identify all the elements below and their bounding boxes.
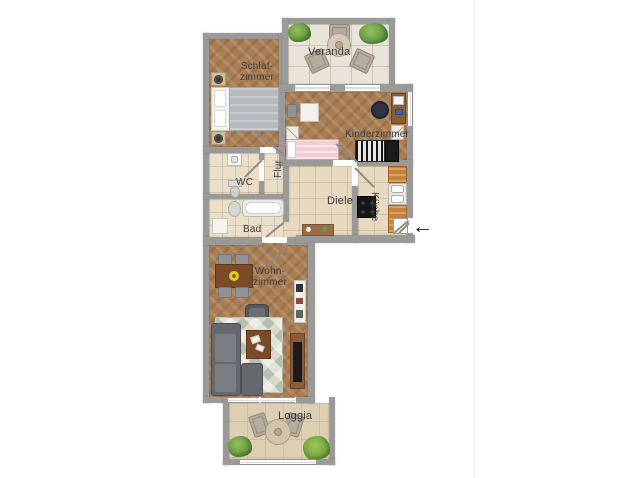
kid-bed-pillow [287, 141, 296, 158]
wall-segment [223, 459, 240, 465]
sink-basin [391, 195, 404, 203]
shelf-item [296, 284, 303, 292]
bed-blanket [229, 87, 279, 131]
wall-segment [285, 160, 333, 166]
wall-segment [296, 235, 415, 243]
sofa-cushion [215, 364, 236, 392]
window-loggia [240, 459, 316, 465]
wall-segment [203, 33, 209, 403]
wardrobe [385, 140, 399, 162]
wall-segment [223, 397, 229, 465]
dining-chair [218, 287, 232, 298]
kitchen-counter [388, 166, 407, 183]
wall-segment [203, 33, 285, 39]
laptop-icon [393, 96, 404, 105]
wall-segment [259, 181, 264, 194]
sink-basin [391, 185, 404, 193]
sideboard-deco [322, 226, 328, 232]
tv-icon [293, 342, 302, 382]
plant-icon [303, 436, 330, 460]
wall-segment [329, 397, 335, 465]
loggia-table-deco [274, 428, 282, 436]
wall-segment [282, 18, 288, 88]
wc-sink-basin [231, 156, 238, 163]
sideboard-deco [306, 227, 311, 232]
wall-segment [308, 243, 315, 403]
kid-table [300, 103, 319, 122]
plant-icon [228, 436, 252, 457]
flower-deco-icon [229, 271, 239, 281]
lamp-icon [214, 75, 223, 84]
window-veranda-door [345, 84, 380, 92]
window-kinderzimmer [407, 92, 413, 126]
shelf-item [296, 298, 303, 304]
bathroom-sink [228, 201, 241, 217]
bed-pillow [214, 110, 226, 127]
washing-machine [212, 218, 228, 234]
sofa-chaise [241, 363, 263, 396]
kid-chair [287, 104, 297, 118]
lamp-icon [214, 134, 223, 143]
office-chair [371, 101, 389, 119]
window-wohnzimmer [261, 397, 295, 403]
dining-chair [235, 287, 249, 298]
wall-segment [316, 459, 335, 465]
sofa-cushion [215, 334, 236, 362]
wall-segment [203, 237, 262, 245]
floor-plan-image: Veranda Schlaf- zimmer Kinderzimmer WC F… [0, 0, 637, 478]
bed-pillow [214, 90, 226, 107]
plant-icon [359, 23, 388, 44]
image-edge-line [474, 0, 475, 478]
wardrobe [355, 140, 385, 162]
room-label-schlafzimmer: Schlaf- zimmer [240, 61, 274, 83]
wall-segment [296, 397, 315, 403]
room-label-wohnzimmer: Wohn- zimmer [253, 266, 287, 288]
laptop-icon [395, 109, 403, 115]
window-veranda-door [295, 84, 330, 92]
bathtub-inner [245, 202, 281, 214]
wall-segment [389, 18, 395, 88]
shelf-item [296, 310, 303, 318]
window-wohnzimmer [228, 397, 259, 403]
entrance-arrow-icon: ← [412, 215, 433, 239]
plant-icon [288, 23, 311, 42]
